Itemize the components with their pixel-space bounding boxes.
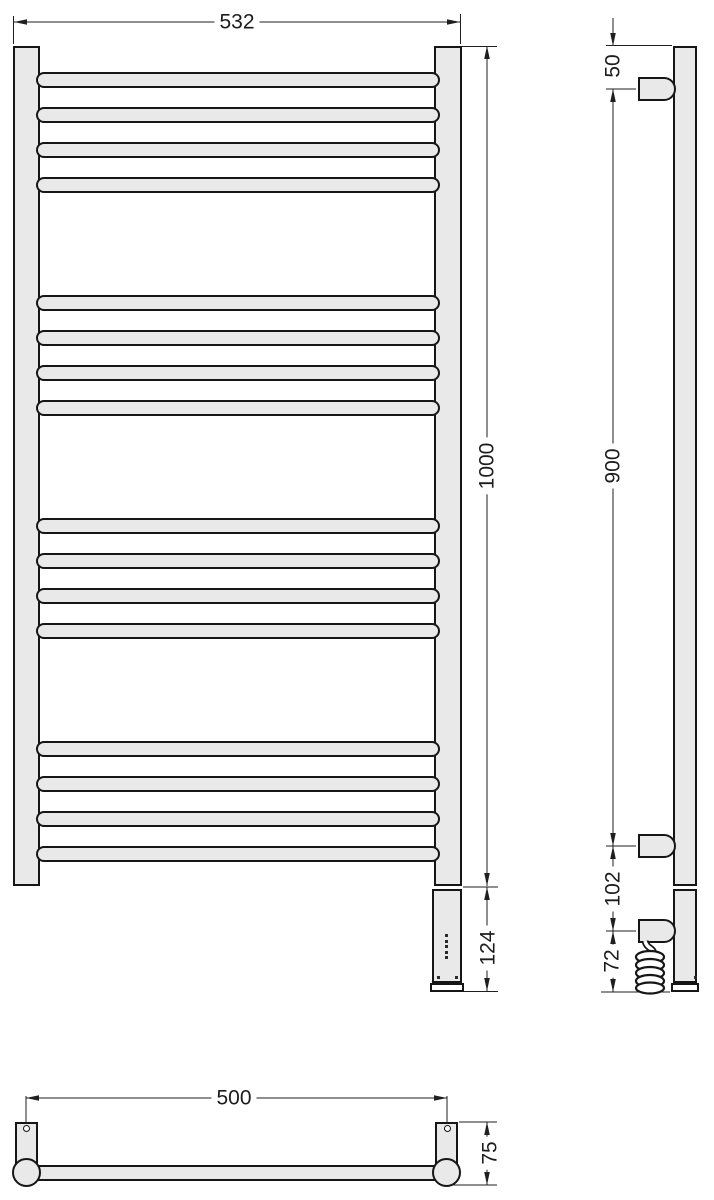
wall-bracket-bottom xyxy=(638,834,676,858)
bottom-bar xyxy=(26,1165,447,1181)
rung-bar xyxy=(36,400,440,416)
wall-bracket-top xyxy=(638,77,676,101)
rung-bar xyxy=(36,741,440,757)
bracket-hole-left xyxy=(23,1125,30,1132)
bracket-hole-right xyxy=(444,1125,451,1132)
rung-bar xyxy=(36,295,440,311)
right-post xyxy=(434,46,462,886)
side-end-cap xyxy=(671,983,699,992)
rung-bar xyxy=(36,776,440,792)
rung-bar xyxy=(36,72,440,88)
side-heater-housing xyxy=(673,889,697,983)
indicator-dot xyxy=(445,951,448,954)
rung-bar xyxy=(36,588,440,604)
rung-bar xyxy=(36,846,440,862)
dim-label-depth: 75 xyxy=(480,1136,501,1169)
rung-bar xyxy=(36,518,440,534)
rung-bar xyxy=(36,365,440,381)
dim-label-mount-width: 500 xyxy=(211,1088,256,1109)
rung-bar xyxy=(36,553,440,569)
dim-label-top-bracket-offset: 50 xyxy=(603,49,624,82)
rung-bar xyxy=(36,330,440,346)
indicator-dot xyxy=(445,940,448,943)
rung-bar xyxy=(36,107,440,123)
side-screw-dot xyxy=(694,976,697,979)
indicator-dot xyxy=(445,945,448,948)
heater-wall-bracket xyxy=(638,919,676,943)
dim-label-bracket-span: 900 xyxy=(603,443,624,488)
housing-screw-dot xyxy=(455,976,458,979)
bottom-tube-left xyxy=(12,1158,41,1187)
technical-drawing-canvas: 532 1000 124 50 900 102 72 500 75 xyxy=(0,0,714,1200)
dim-label-overall-width: 532 xyxy=(214,12,259,33)
indicator-dot xyxy=(445,934,448,937)
indicator-dot xyxy=(445,956,448,959)
dim-label-lower-bracket-gap: 102 xyxy=(603,866,624,911)
rung-bar xyxy=(36,177,440,193)
dim-label-cable-length: 72 xyxy=(602,944,623,977)
rung-bar xyxy=(36,811,440,827)
rung-bar xyxy=(36,623,440,639)
bottom-tube-right xyxy=(432,1158,461,1187)
housing-screw-dot xyxy=(437,976,440,979)
housing-end-cap xyxy=(430,983,464,992)
power-cable-coil xyxy=(636,941,664,994)
dim-label-overall-height: 1000 xyxy=(477,438,498,495)
left-post xyxy=(13,46,40,886)
side-profile-tube xyxy=(673,46,697,886)
rung-bar xyxy=(36,142,440,158)
dim-label-heater-height: 124 xyxy=(478,925,499,970)
